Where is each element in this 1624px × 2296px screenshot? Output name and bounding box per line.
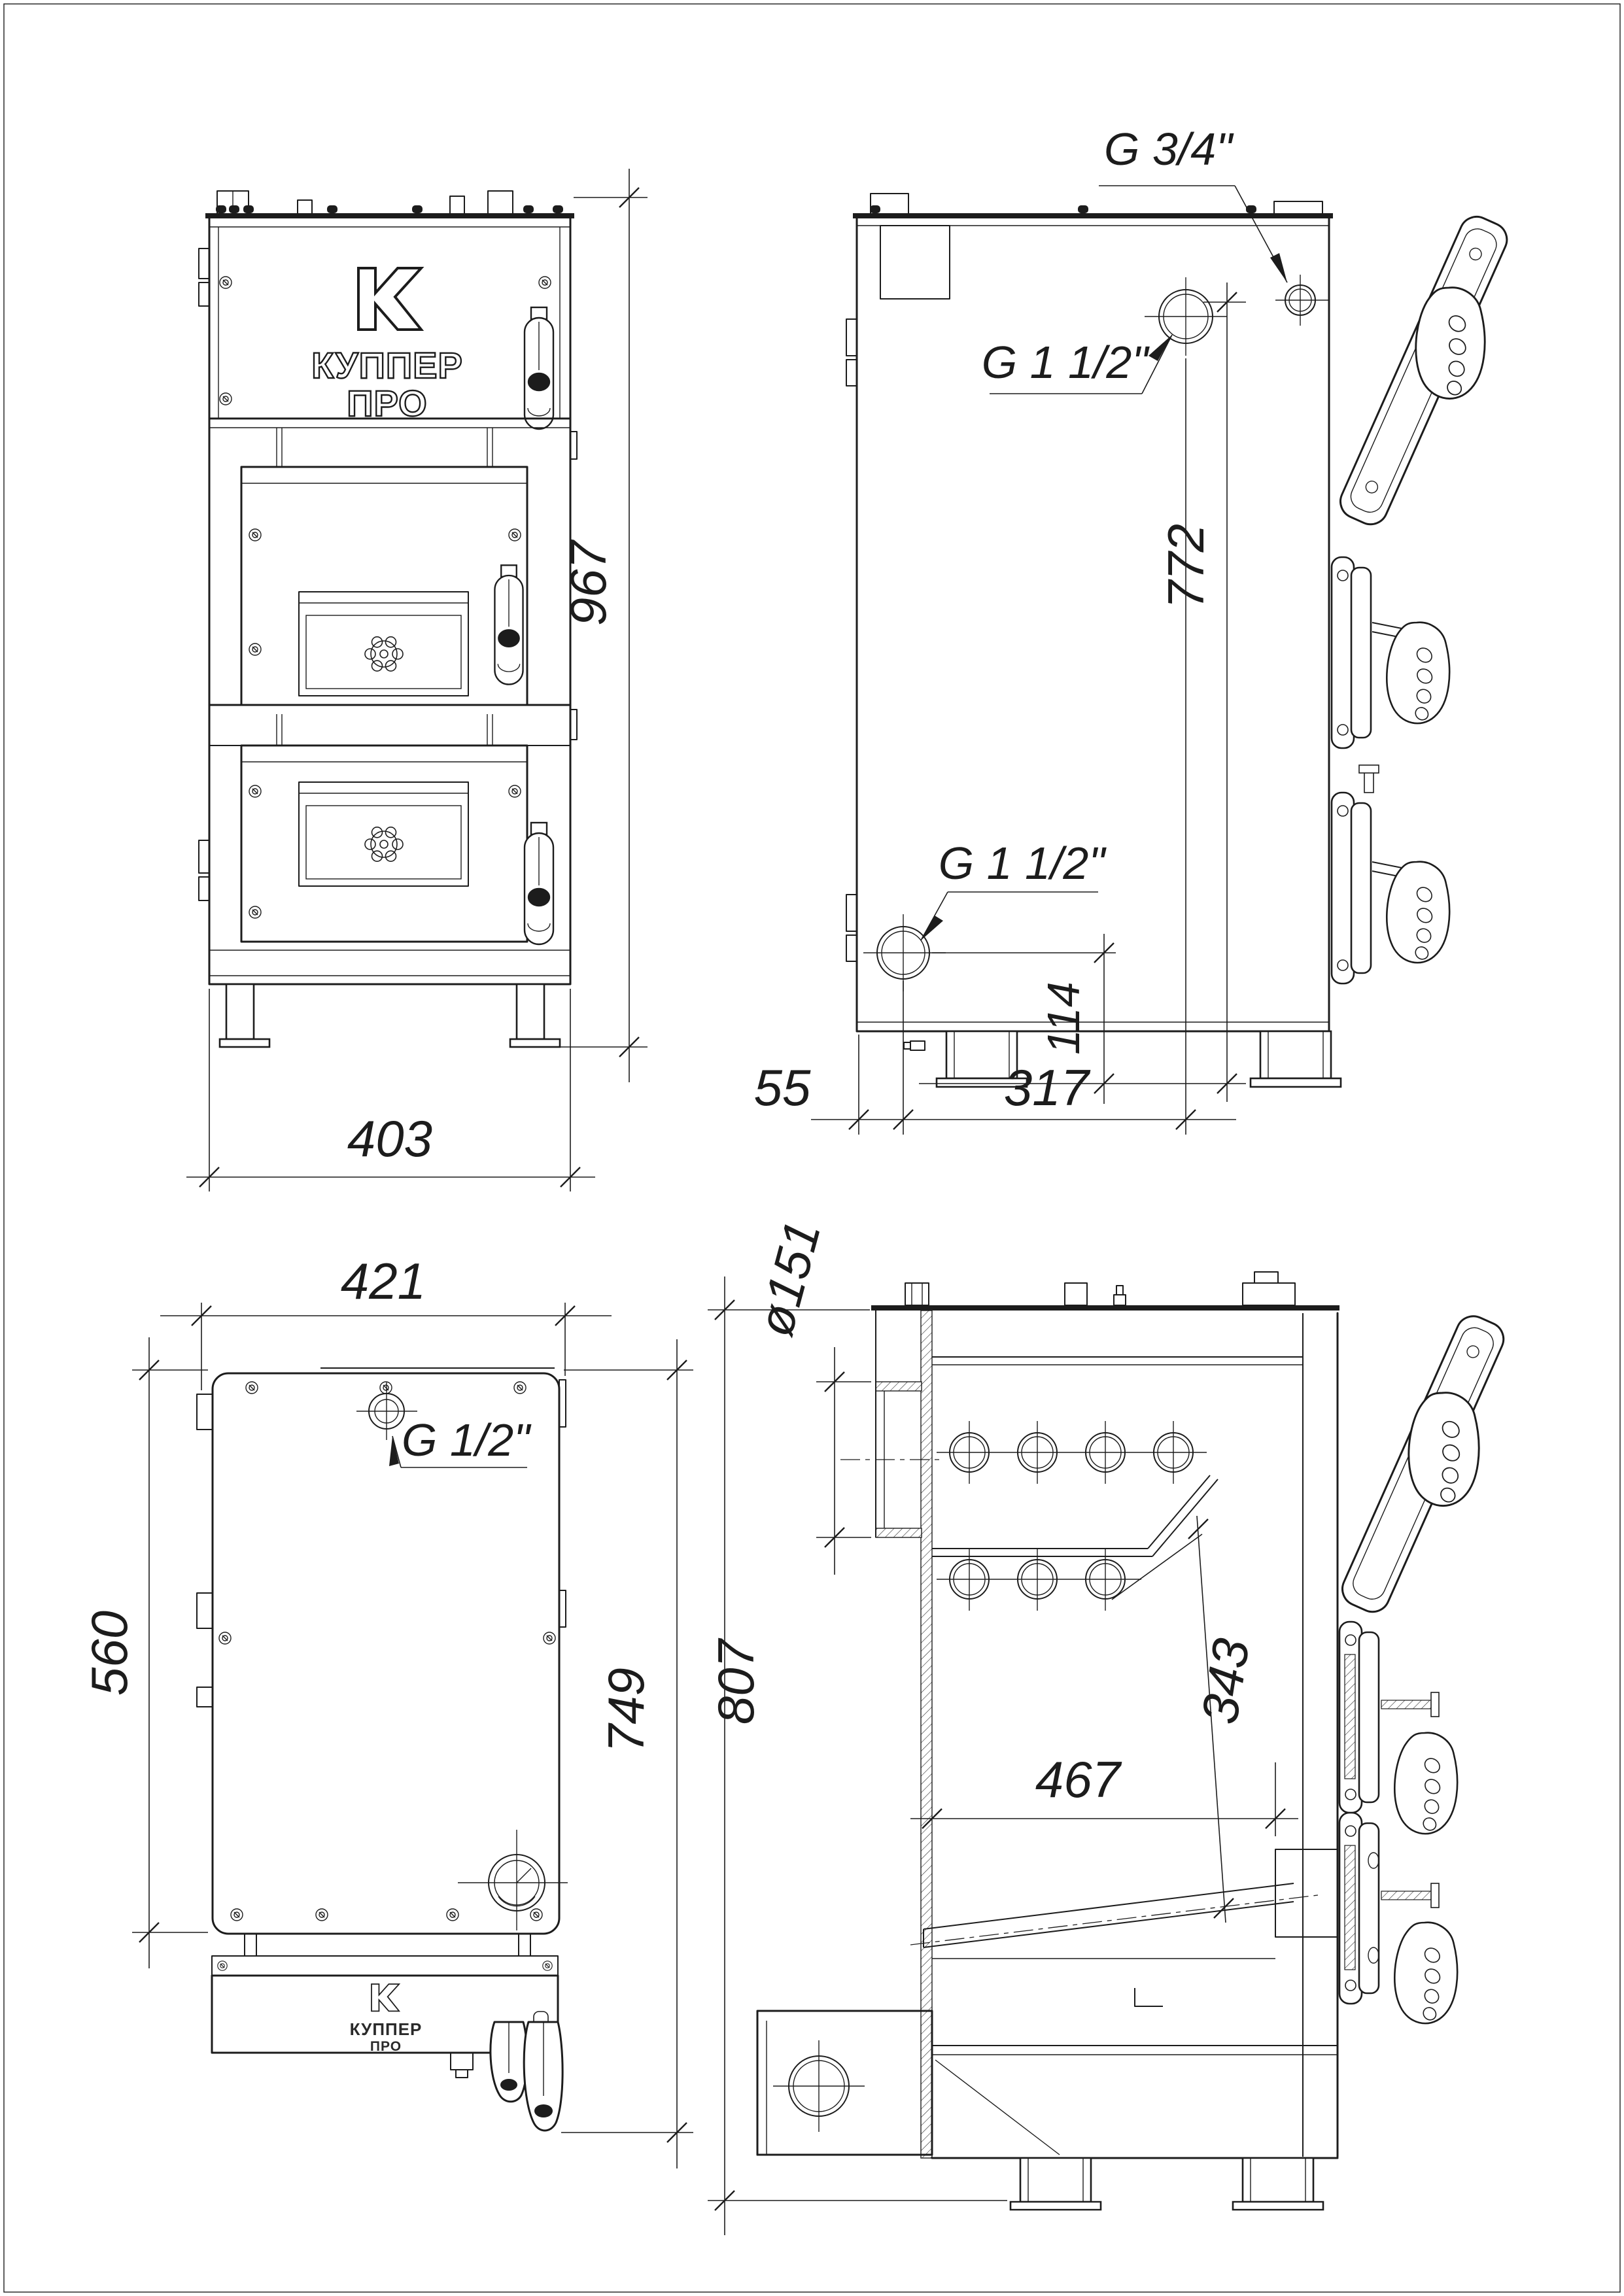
sensor-connection	[1275, 275, 1329, 326]
dimension-section-height-807: 807	[707, 1277, 1007, 2235]
svg-text:114: 114	[1038, 982, 1089, 1055]
front-middle-door	[241, 467, 527, 705]
svg-text:421: 421	[341, 1252, 426, 1310]
ash-chamber	[757, 1959, 1338, 2155]
svg-text:G 3/4": G 3/4"	[1104, 124, 1234, 175]
dimension-height-967: 967	[517, 169, 648, 1082]
screw	[220, 277, 232, 288]
fire-tubes-upper-row	[937, 1421, 1207, 1484]
section-left-foot	[1011, 2158, 1101, 2210]
svg-text:967: 967	[559, 539, 617, 626]
label-g112-return: G 1 1/2"	[921, 838, 1107, 940]
dimension-flue-diameter-151: ø151	[746, 1215, 871, 1575]
inclined-air-tube	[910, 1849, 1338, 1947]
supply-connection	[1145, 277, 1227, 356]
svg-text:G 1/2": G 1/2"	[402, 1414, 532, 1465]
side-lower-door	[1332, 765, 1479, 984]
front-top-fittings	[216, 191, 563, 214]
dimension-top-total-depth-749: 749	[561, 1339, 693, 2168]
door-handle	[1358, 851, 1479, 973]
top-handle-1	[491, 2022, 527, 2102]
screw	[539, 277, 551, 288]
brand-small-line2: ПРО	[370, 2039, 402, 2054]
brand-logo-k	[358, 268, 421, 330]
door-knob	[365, 827, 403, 861]
dimension-firebox-diagonal-343: 343	[1112, 1516, 1260, 1923]
front-left-foot	[220, 984, 269, 1047]
door-knob	[365, 637, 403, 671]
section-top-fittings	[905, 1272, 1295, 1305]
svg-text:343: 343	[1190, 1635, 1260, 1728]
section-lower-door	[1339, 1813, 1487, 2034]
front-upper-panel: КУППЕР ПРО	[220, 268, 553, 429]
svg-text:55: 55	[754, 1059, 811, 1116]
svg-text:403: 403	[347, 1110, 432, 1167]
top-view: G 1/2" КУППЕР ПРО	[80, 1252, 693, 2168]
drain-plug	[904, 1041, 925, 1050]
svg-text:467: 467	[1035, 1751, 1122, 1808]
svg-text:G 1 1/2": G 1 1/2"	[982, 337, 1150, 388]
side-view: G 3/4" G 1 1/2" G 1 1/2"	[754, 124, 1517, 1135]
brand-logo-k-small	[371, 1984, 399, 2011]
screw	[220, 393, 232, 405]
side-right-foot	[1251, 1031, 1341, 1087]
dimension-offsets-55-317: 55 317	[754, 358, 1236, 1135]
top-gauge	[458, 1830, 568, 1930]
smoke-baffle	[932, 1475, 1218, 1556]
side-middle-door	[1332, 557, 1479, 748]
top-front-panel: КУППЕР ПРО	[212, 1934, 562, 2131]
svg-text:317: 317	[1004, 1059, 1091, 1116]
door-handle	[1366, 1911, 1487, 2034]
middle-latch-handle	[494, 565, 523, 684]
fire-tubes-lower-row	[937, 1548, 1141, 1611]
front-view: КУППЕР ПРО	[186, 169, 648, 1191]
section-rear-wall	[921, 1311, 932, 2158]
label-g12: G 1/2"	[389, 1414, 532, 1467]
lower-latch-handle	[525, 823, 553, 944]
dimension-firebox-depth-467: 467	[910, 1751, 1298, 1836]
label-g112-supply: G 1 1/2"	[982, 335, 1172, 394]
front-lower-door	[241, 745, 553, 944]
section-middle-door	[1339, 1622, 1487, 1844]
label-g34: G 3/4"	[1099, 124, 1287, 283]
top-handle-2	[524, 2022, 562, 2131]
section-loading-door-open	[1337, 1311, 1512, 1617]
door-handle	[1358, 611, 1479, 734]
side-flue-box	[880, 226, 950, 299]
brand-text-line1: КУППЕР	[311, 345, 463, 386]
svg-text:749: 749	[597, 1668, 655, 1753]
svg-text:G 1 1/2": G 1 1/2"	[939, 838, 1107, 889]
section-view: ø151 807 467 343	[707, 1215, 1512, 2235]
dimension-top-depth-560: 560	[80, 1337, 208, 1968]
front-right-foot	[510, 984, 560, 1047]
upper-latch-handle	[525, 307, 553, 429]
dimension-supply-height-772: 772	[1157, 283, 1246, 1102]
brand-small-line1: КУППЕР	[350, 2019, 423, 2039]
drawing-sheet: КУППЕР ПРО	[0, 0, 1624, 2296]
section-right-foot	[1233, 2158, 1323, 2210]
side-back-tabs	[846, 319, 857, 961]
dimension-top-width-421: 421	[160, 1252, 612, 1390]
svg-text:807: 807	[707, 1637, 765, 1724]
door-handle	[1366, 1722, 1487, 1844]
side-loading-door-open	[1335, 211, 1517, 530]
svg-text:ø151: ø151	[746, 1215, 831, 1343]
svg-text:560: 560	[80, 1611, 138, 1696]
